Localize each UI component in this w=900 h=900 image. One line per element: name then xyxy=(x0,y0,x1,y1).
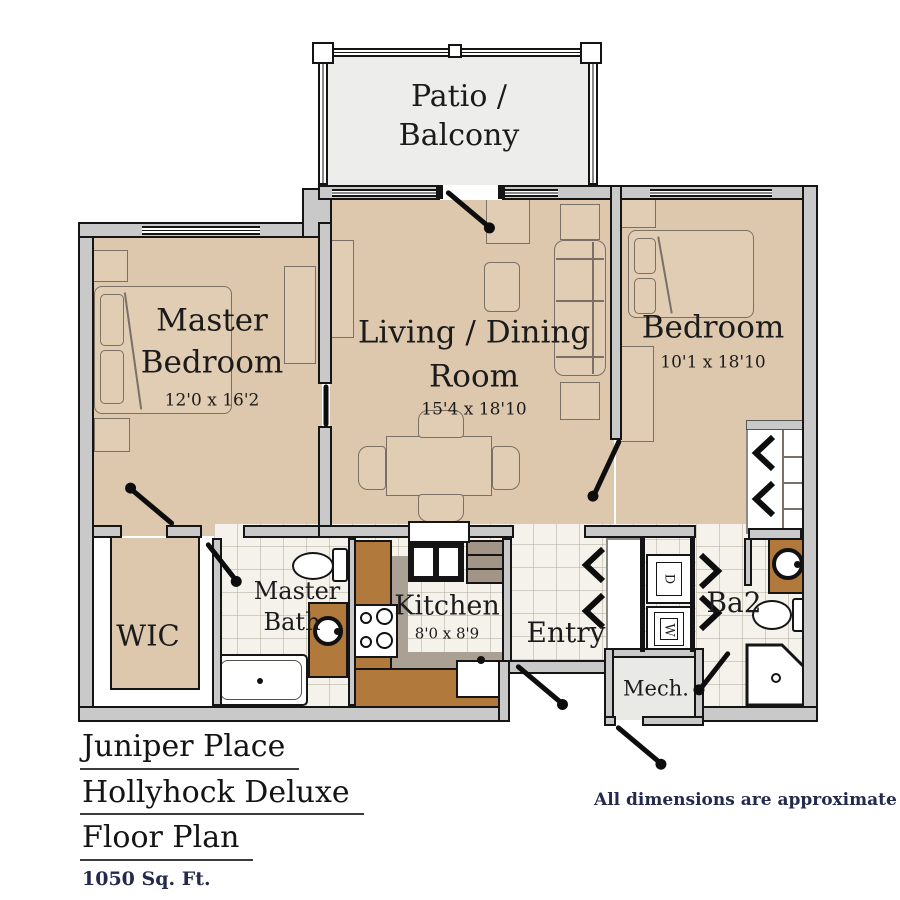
sofa-cushion-line xyxy=(556,356,604,358)
dryer-label: D xyxy=(663,574,676,584)
master-bedroom-dims: 12'0 x 16'2 xyxy=(165,393,260,410)
master-bedroom-door xyxy=(324,385,329,427)
wall xyxy=(166,525,202,538)
master-bedroom-label-line1: Master xyxy=(156,306,268,337)
master-bed-pillow xyxy=(100,350,124,404)
wall xyxy=(698,706,818,722)
closet-shelf xyxy=(783,482,803,484)
bedroom-label: Bedroom xyxy=(642,313,785,344)
wall xyxy=(744,538,752,586)
closet-shelf xyxy=(783,456,803,458)
window xyxy=(502,189,558,197)
media-console xyxy=(330,240,354,338)
wall xyxy=(243,525,320,538)
ba2-faucet xyxy=(794,561,801,568)
wall xyxy=(318,525,412,538)
bedroom-closet-header xyxy=(746,420,804,430)
square-footage: 1050 Sq. Ft. xyxy=(80,868,420,890)
bed-pillow xyxy=(634,238,656,274)
entry-label: Entry xyxy=(527,619,606,647)
window xyxy=(142,226,260,235)
nightstand xyxy=(620,196,656,228)
wall xyxy=(748,528,802,540)
wall xyxy=(318,426,332,538)
armchair xyxy=(484,262,520,312)
bathtub-drain xyxy=(257,678,263,684)
stove-burner xyxy=(376,608,393,625)
side-table xyxy=(486,198,530,244)
sofa-back-line xyxy=(592,242,594,374)
stove-burner xyxy=(360,636,372,648)
mech-label: Mech. xyxy=(623,679,689,700)
patio-rail-left xyxy=(318,48,328,185)
end-table xyxy=(560,204,600,240)
fridge-door-left xyxy=(412,546,435,578)
stove-burner xyxy=(360,612,372,624)
master-bedroom-label-line2: Bedroom xyxy=(141,348,284,379)
patio-post-left xyxy=(312,42,334,64)
wall xyxy=(502,538,512,662)
master-dresser xyxy=(284,266,316,364)
patio-label-line1: Patio / xyxy=(411,82,507,112)
master-bath-label-line1: Master xyxy=(254,579,341,603)
wic-label: WIC xyxy=(116,622,179,651)
master-bath-label-line2: Bath xyxy=(263,610,320,634)
wall xyxy=(610,185,622,440)
dining-chair xyxy=(358,446,386,490)
wall xyxy=(466,525,514,538)
master-bath-faucet xyxy=(334,628,341,635)
wall xyxy=(348,538,356,706)
wall xyxy=(604,648,614,726)
plan-title-line1: Juniper Place xyxy=(80,730,299,770)
ba2-label: Ba2 xyxy=(706,589,761,617)
master-bench xyxy=(94,418,130,452)
window xyxy=(650,189,772,197)
wall xyxy=(584,525,696,538)
title-block: Juniper Place Hollyhock Deluxe Floor Pla… xyxy=(80,730,420,890)
toilet-bowl xyxy=(292,552,334,580)
wall xyxy=(690,538,695,652)
patio-rail-right xyxy=(588,48,598,185)
patio-post-right xyxy=(580,42,602,64)
wall xyxy=(604,716,616,726)
living-room-label-line1: Living / Dining xyxy=(358,318,590,349)
door-jamb xyxy=(498,185,505,199)
washer-label: W xyxy=(663,623,676,636)
living-room-label-line2: Room xyxy=(429,362,519,393)
plan-title-line3: Floor Plan xyxy=(80,821,253,861)
kitchen-label: Kitchen xyxy=(394,593,500,620)
door-jamb xyxy=(436,185,443,199)
end-table xyxy=(560,382,600,420)
wall xyxy=(802,185,818,722)
fridge-door-right xyxy=(437,546,460,578)
living-room-dims: 15'4 x 18'10 xyxy=(421,402,526,419)
sofa-cushion-line xyxy=(556,258,604,260)
patio-post-center xyxy=(448,44,462,58)
wall xyxy=(318,222,332,384)
master-bed-pillow xyxy=(100,294,124,346)
wic-shelf-area xyxy=(110,538,200,690)
kitchen-pass-through-counter xyxy=(408,521,470,543)
patio-label-line2: Balcony xyxy=(399,121,520,151)
dining-chair xyxy=(492,446,520,490)
wall xyxy=(92,525,122,538)
entry-closet xyxy=(606,538,644,652)
mech-door-swing xyxy=(615,724,663,765)
bifold-door-icon xyxy=(698,552,724,590)
dimensions-disclaimer: All dimensions are approximate xyxy=(594,790,897,810)
bifold-door-icon xyxy=(750,480,776,518)
closet-shelf-edge xyxy=(782,430,784,532)
window xyxy=(332,189,440,197)
wall xyxy=(78,222,94,722)
wall xyxy=(498,660,510,722)
bifold-door-icon xyxy=(580,546,606,584)
kitchen-faucet xyxy=(477,656,485,664)
dresser xyxy=(620,346,654,442)
dining-table xyxy=(386,436,492,496)
wall xyxy=(642,716,704,726)
dining-chair xyxy=(418,494,464,522)
wall xyxy=(78,706,510,722)
plan-title-line2: Hollyhock Deluxe xyxy=(80,776,364,816)
sofa-cushion-line xyxy=(556,300,604,302)
wall xyxy=(604,648,704,658)
master-nightstand xyxy=(92,250,128,282)
floor-plan: D W xyxy=(0,0,900,900)
bifold-door-icon xyxy=(750,434,776,472)
wall xyxy=(640,538,645,652)
bedroom-dims: 10'1 x 18'10 xyxy=(660,355,765,372)
closet-shelf xyxy=(783,508,803,510)
stove-burner xyxy=(376,632,393,649)
kitchen-dims: 8'0 x 8'9 xyxy=(415,627,479,642)
